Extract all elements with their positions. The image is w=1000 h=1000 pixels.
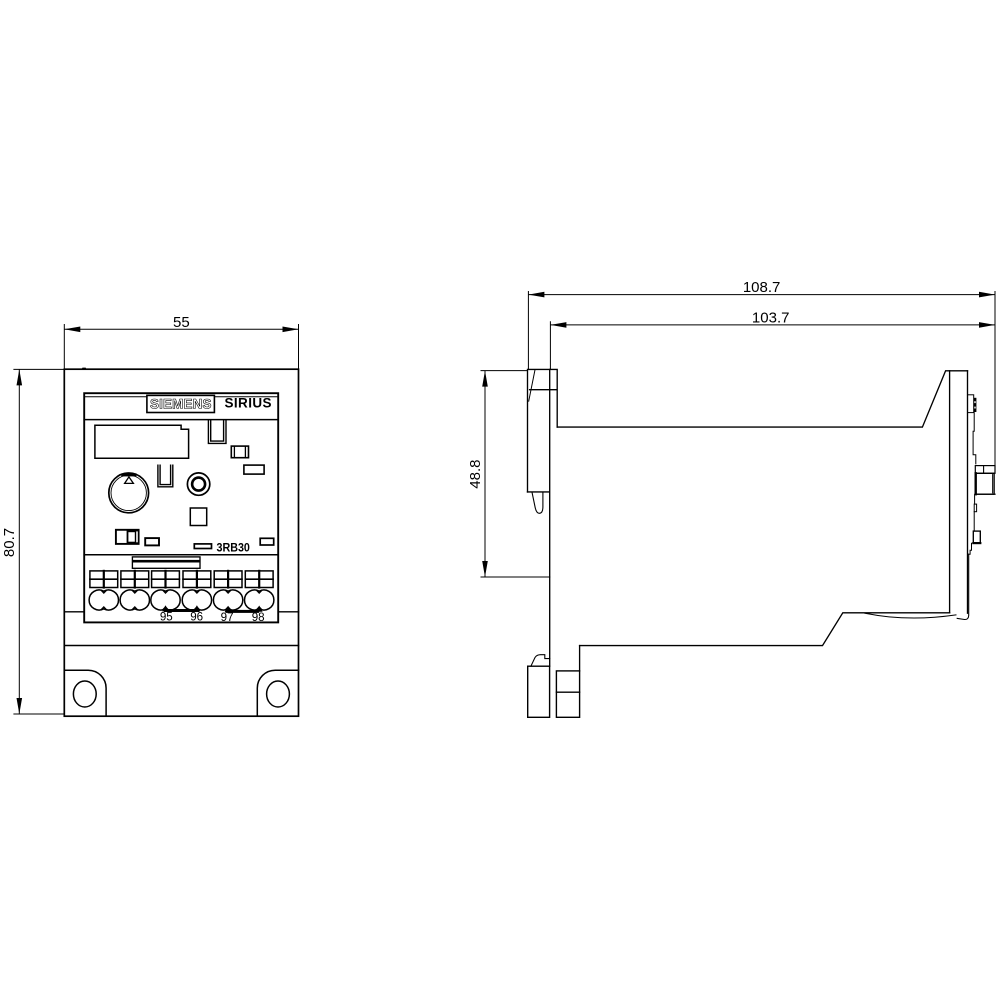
svg-text:SIRIUS: SIRIUS [224, 396, 271, 411]
svg-text:97: 97 [221, 611, 234, 624]
svg-text:103.7: 103.7 [752, 309, 790, 326]
svg-text:55: 55 [173, 314, 190, 331]
svg-text:108.7: 108.7 [743, 279, 781, 296]
svg-text:3RB30: 3RB30 [217, 541, 251, 555]
svg-text:80.7: 80.7 [1, 528, 18, 557]
svg-text:98: 98 [252, 611, 265, 624]
svg-text:48.8: 48.8 [467, 459, 484, 488]
svg-text:SIEMENS: SIEMENS [150, 396, 212, 411]
svg-text:96: 96 [190, 611, 203, 624]
svg-text:95: 95 [160, 611, 173, 624]
